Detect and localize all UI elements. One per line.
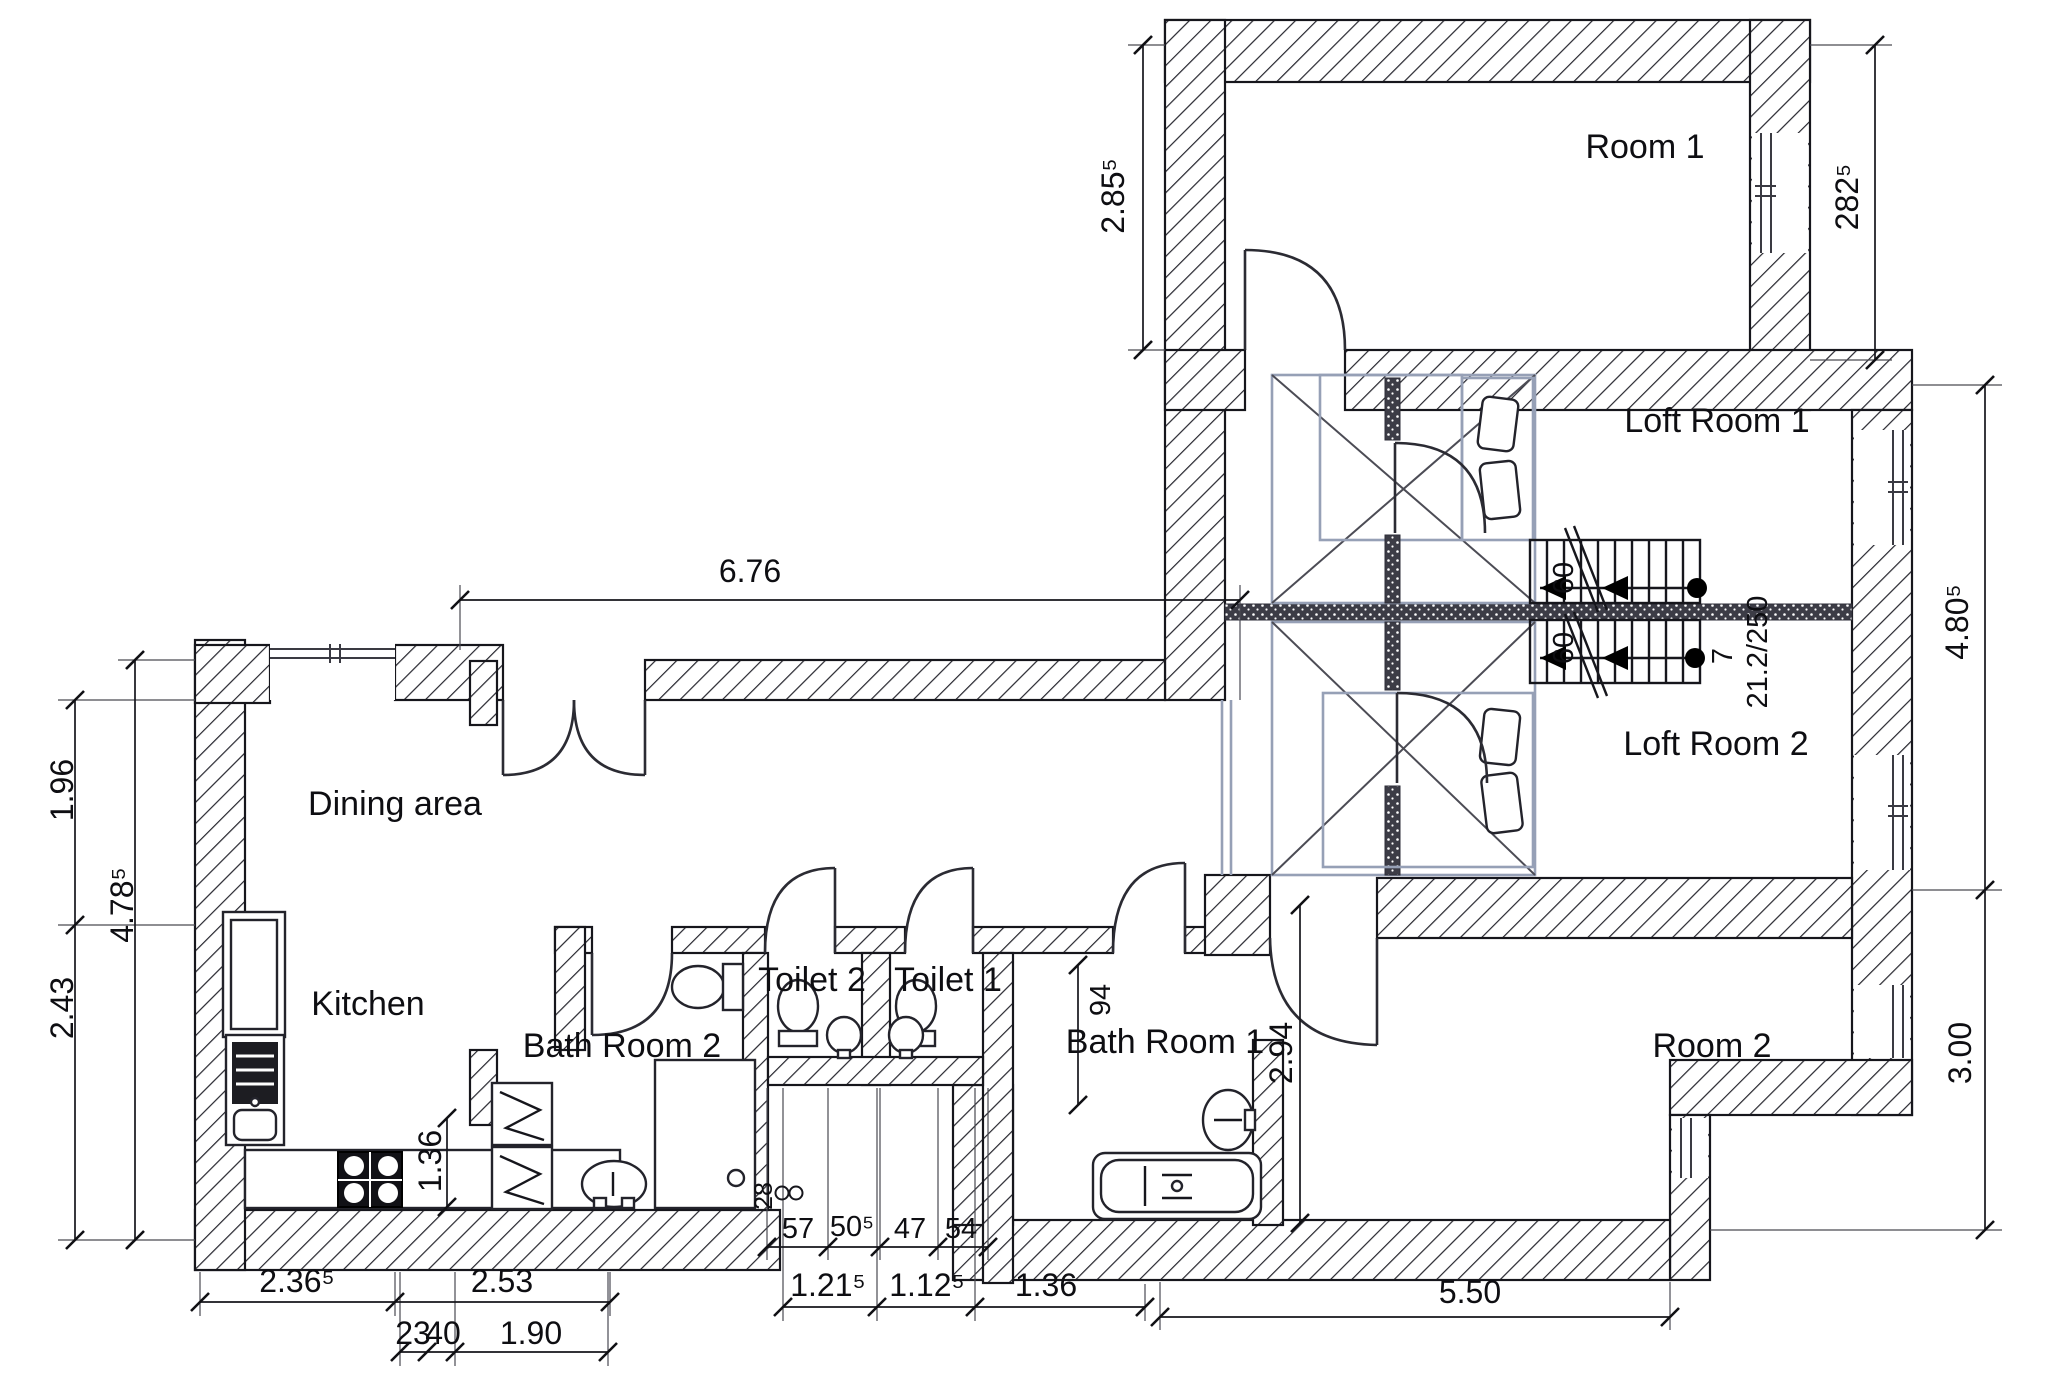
dim-small-b: 50⁵ xyxy=(830,1211,874,1243)
stair-start-dot xyxy=(1685,648,1705,668)
bed-loft2 xyxy=(1323,693,1533,867)
window-room2-east xyxy=(1672,1118,1708,1178)
door-toilet1 xyxy=(905,868,973,953)
svg-text:1.36: 1.36 xyxy=(412,1130,448,1192)
loft2-platform xyxy=(1272,622,1535,875)
wall-north-room1 xyxy=(1165,20,1810,82)
svg-text:1.96: 1.96 xyxy=(44,759,80,821)
room-label-toilet2: Toilet 2 xyxy=(758,961,866,999)
dim-corridor-stub: 28 xyxy=(750,1182,803,1210)
svg-text:4.78⁵: 4.78⁵ xyxy=(104,867,140,943)
walls xyxy=(195,20,1912,1283)
kitchen-sink-unit xyxy=(226,1035,284,1145)
sink-toilet1 xyxy=(889,1017,923,1058)
door-room1 xyxy=(1245,250,1345,350)
window-dining-north xyxy=(270,642,395,700)
door-bath2 xyxy=(592,953,672,1035)
shower-bath2 xyxy=(655,1060,755,1208)
boiler-units-bath2 xyxy=(492,1083,552,1209)
stair-count-label: 7 xyxy=(1707,648,1739,664)
dim-left-lower: 2.43 xyxy=(44,925,84,1249)
door-bath1 xyxy=(1113,863,1185,953)
loft1-stub-a xyxy=(1385,378,1400,440)
floorplan-drawing: 60 60 7 21.2/250 xyxy=(0,0,2048,1391)
pillow xyxy=(1477,396,1519,452)
dim-sub-b: 40 xyxy=(425,1315,461,1351)
wall-room1-south-a xyxy=(1165,350,1245,410)
windows xyxy=(270,133,1910,1178)
svg-text:2.43: 2.43 xyxy=(44,977,80,1039)
room-label-room1: Room 1 xyxy=(1585,128,1704,166)
room-label-bath2: Bath Room 2 xyxy=(523,1027,721,1065)
dim-small-c: 47 xyxy=(894,1213,926,1245)
stove xyxy=(338,1152,402,1207)
room-label-kitchen: Kitchen xyxy=(311,985,424,1023)
window-loft2-east xyxy=(1854,755,1910,870)
door-toilet2 xyxy=(765,868,835,953)
stair-pitch-label: 21.2/250 xyxy=(1742,596,1774,709)
dim-left-upper: 1.96 xyxy=(44,691,84,934)
door-entrance-double xyxy=(503,700,645,775)
bathtub xyxy=(1093,1153,1261,1219)
stair-width-upper-label: 60 xyxy=(1548,562,1580,594)
dim-room1-left: 2.85⁵ xyxy=(1095,36,1152,359)
svg-text:2.94: 2.94 xyxy=(1263,1022,1299,1084)
window-room1-east xyxy=(1752,133,1808,253)
wall-north-dining-stub xyxy=(470,661,497,725)
svg-text:2.85⁵: 2.85⁵ xyxy=(1095,158,1131,234)
dim-bottom-row2: 23 40 1.90 xyxy=(391,1315,617,1361)
window-loft1-east xyxy=(1854,430,1910,545)
loft2-stub-b xyxy=(1385,786,1400,875)
dim-room1-right: 282⁵ xyxy=(1829,36,1884,369)
dim-bottom-bath2: 2.53 xyxy=(471,1263,533,1299)
wall-toilets-counter xyxy=(768,1057,983,1085)
wall-north-corridor xyxy=(645,660,1165,700)
room-label-loft2: Loft Room 2 xyxy=(1623,725,1808,763)
room-label-loft1: Loft Room 1 xyxy=(1624,402,1809,440)
loft2-door xyxy=(1397,693,1487,783)
svg-text:282⁵: 282⁵ xyxy=(1829,164,1865,231)
stair-width-lower-label: 60 xyxy=(1548,632,1580,664)
room-label-bath1: Bath Room 1 xyxy=(1066,1023,1264,1061)
wall-corr-south-c xyxy=(835,927,905,953)
kitchen-tall-unit xyxy=(223,912,285,1037)
wall-junction-block xyxy=(1205,875,1270,955)
sink-toilet2 xyxy=(827,1017,861,1058)
dim-bottom-bath1: 1.36 xyxy=(1015,1267,1077,1303)
stair-start-dot xyxy=(1687,578,1707,598)
svg-text:6.76: 6.76 xyxy=(719,553,781,589)
wall-north-dining-a xyxy=(195,645,270,703)
room-label-room2: Room 2 xyxy=(1652,1027,1771,1065)
dim-bottom-toilet2: 1.21⁵ xyxy=(790,1267,866,1303)
svg-text:3.00: 3.00 xyxy=(1942,1022,1978,1084)
dim-bottom-toilet1: 1.12⁵ xyxy=(889,1267,965,1303)
dim-left-total: 4.78⁵ xyxy=(104,651,144,1249)
toilet-bath2 xyxy=(672,964,743,1010)
svg-text:28: 28 xyxy=(750,1182,778,1210)
dim-small-a: 57 xyxy=(782,1213,814,1245)
dim-loft-right: 4.80⁵ xyxy=(1939,376,1994,899)
wall-room2-jog xyxy=(1670,1060,1912,1115)
loft1-stub-b xyxy=(1385,535,1400,603)
wall-loft2-room2 xyxy=(1377,878,1852,938)
wall-corr-south-d xyxy=(973,927,1113,953)
dim-bottom-room2: 5.50 xyxy=(1439,1274,1501,1310)
pillow xyxy=(1479,460,1521,519)
room-label-toilet1: Toilet 1 xyxy=(894,961,1002,999)
svg-text:4.80⁵: 4.80⁵ xyxy=(1939,584,1975,660)
svg-text:94: 94 xyxy=(1085,984,1117,1016)
window-room2-nook-east xyxy=(1854,985,1910,1058)
dim-bottom-kitchen: 2.36⁵ xyxy=(259,1263,335,1299)
dim-small-d: 54 xyxy=(945,1213,977,1245)
sink-bath1 xyxy=(1203,1090,1255,1150)
dim-corridor-top: 6.76 xyxy=(451,553,1249,609)
room-label-dining: Dining area xyxy=(308,785,482,823)
sink-bath2 xyxy=(582,1161,646,1208)
floor-plan-page: { "labels": { "room1": "Room 1", "loft_r… xyxy=(0,0,2048,1391)
dim-sub-c: 1.90 xyxy=(500,1315,562,1351)
wall-corr-south-b xyxy=(672,927,765,953)
wall-south-kitchen xyxy=(195,1210,780,1270)
dim-room2-right: 3.00 xyxy=(1942,890,1994,1239)
loft2-stub-a xyxy=(1385,622,1400,690)
wall-room1-south-b xyxy=(1345,350,1912,410)
